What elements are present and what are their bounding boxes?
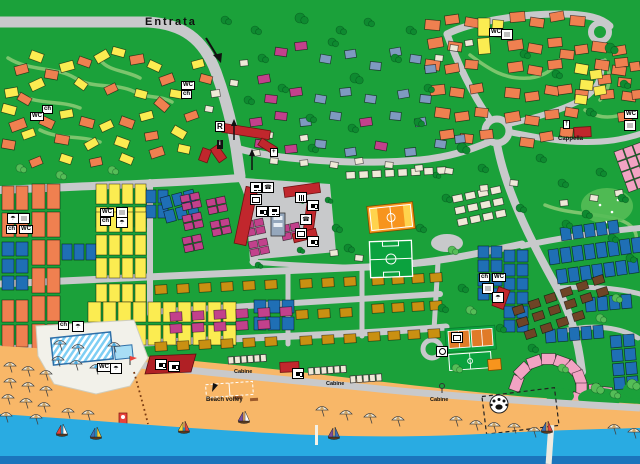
pitch [170, 312, 182, 322]
pitch [221, 282, 233, 292]
pitch [415, 165, 424, 172]
chapel-label: Cappella [558, 136, 583, 142]
pitch [477, 38, 490, 55]
ch-label: ch [181, 90, 192, 99]
pitch [580, 79, 594, 90]
pitch [524, 91, 539, 102]
pitch [439, 129, 454, 140]
pitch [428, 329, 440, 339]
pitch [408, 330, 420, 340]
ch-label: ch [58, 321, 69, 330]
tv-room-icon [295, 228, 307, 239]
bar-icon [155, 359, 167, 370]
pitch [574, 94, 587, 105]
cabins-label: Cabine [430, 397, 448, 403]
wc-label: WC [19, 225, 33, 234]
pitch [430, 273, 442, 283]
groyne [315, 425, 318, 445]
pitch [360, 117, 373, 127]
pitch [240, 60, 249, 67]
pitch [560, 49, 575, 59]
pitch [364, 94, 376, 103]
pitch [250, 117, 263, 127]
pitch [265, 337, 277, 347]
chapel-cross-icon: † [563, 120, 570, 129]
pitch [465, 59, 479, 69]
pitch [199, 283, 211, 293]
phone-icon: ☎ [262, 182, 274, 193]
pitch [236, 321, 248, 331]
umbrella-service-icon: ☂ [110, 363, 122, 374]
restaurant-icon [295, 192, 307, 203]
pitch [340, 87, 352, 96]
pitch [524, 115, 539, 126]
pitch [434, 107, 450, 119]
pitch [258, 308, 270, 318]
pitch [454, 111, 469, 122]
pitch [300, 336, 312, 346]
pitch [300, 279, 312, 289]
shower-icon [18, 213, 30, 224]
pitch [344, 49, 356, 58]
pitch [390, 111, 402, 120]
pitch [314, 94, 326, 104]
pitch [280, 307, 292, 317]
bar-icon [307, 200, 319, 211]
parking-area [431, 234, 463, 252]
bar-icon [307, 236, 319, 247]
pitch [275, 111, 288, 120]
pitch [549, 11, 564, 22]
umbrella-service-icon: ☂ [116, 217, 128, 228]
pitch [480, 185, 489, 192]
pitch [593, 85, 606, 96]
pitch [425, 19, 441, 30]
pitch [574, 44, 588, 55]
shower-icon [624, 120, 636, 131]
pitch-grid [62, 244, 96, 260]
pitch [295, 41, 308, 50]
pitch [427, 37, 444, 49]
pitch [570, 15, 586, 26]
pitch [285, 144, 298, 153]
shop-cart-icon [250, 182, 262, 193]
pitch [412, 302, 424, 312]
pitch [4, 87, 18, 98]
pitch [574, 63, 589, 75]
pitch [450, 44, 459, 51]
pitch [629, 61, 640, 71]
shower-icon [501, 29, 513, 40]
pitch [322, 278, 334, 288]
bar-icon [256, 206, 268, 217]
pitch [344, 334, 356, 344]
pitch [385, 162, 394, 169]
pitch [330, 250, 339, 257]
pitch [340, 308, 352, 318]
pitch [464, 17, 479, 28]
pitch [392, 303, 404, 313]
pitch [409, 54, 421, 63]
pitch [214, 322, 226, 332]
pitch [170, 324, 182, 334]
pitch [300, 160, 309, 167]
pitch [155, 285, 167, 295]
pitch [510, 11, 526, 22]
deep-sea [0, 456, 640, 464]
pitch [177, 284, 189, 294]
pitch [505, 87, 521, 99]
pitch [435, 55, 444, 62]
pitch [177, 341, 189, 351]
wc-label: WC [492, 273, 506, 282]
pitch [480, 129, 494, 139]
pitch [539, 131, 553, 142]
bar-icon [168, 361, 180, 372]
resort-map-graphics [0, 0, 640, 464]
pitch [355, 157, 364, 164]
paw-print-icon [490, 395, 508, 413]
table-tennis-icon [451, 332, 463, 343]
pitch [372, 304, 384, 314]
pitch [230, 79, 239, 86]
pitch [519, 137, 534, 148]
pitch [330, 161, 339, 168]
wc-label: WC [97, 363, 111, 372]
pitch [290, 87, 303, 97]
shop-cart-icon [268, 206, 280, 217]
pitch [469, 83, 483, 94]
pitch [374, 141, 387, 151]
pitch [510, 180, 519, 187]
pitch [270, 158, 279, 165]
umbrella-service-icon: ☂ [72, 321, 84, 332]
pitch [548, 37, 563, 47]
pitch [564, 107, 578, 118]
pitch [557, 84, 572, 95]
pitch [355, 255, 364, 262]
pitch [420, 94, 432, 103]
pitch [548, 59, 563, 69]
pitch [445, 167, 454, 174]
first-aid-icon: + [270, 148, 278, 157]
pitch [296, 310, 308, 320]
pitch [257, 74, 270, 84]
pitch [221, 339, 233, 349]
pitch [412, 274, 424, 284]
pitch [300, 134, 309, 141]
pitch [319, 54, 331, 64]
pitch [594, 59, 609, 71]
phone-icon: ☎ [300, 214, 312, 225]
reception-label: R [215, 121, 225, 132]
pitch [329, 111, 341, 120]
pitch [455, 134, 466, 143]
pitch [449, 87, 464, 98]
umbrella-service-icon: ☂ [492, 292, 504, 303]
cabins-label: Cabine [234, 369, 252, 375]
pitch [211, 89, 221, 97]
wc-label: WC [624, 110, 638, 119]
campground-map: Entrata WC ch ch WC WC ch ch WC ch WC ch… [0, 0, 640, 464]
pitch [425, 64, 437, 73]
pitch [322, 335, 334, 345]
pitch [54, 134, 69, 145]
pitch [444, 63, 459, 74]
pitch [344, 147, 356, 156]
lifeguard-buoy-icon [119, 413, 127, 424]
pitch [504, 111, 521, 123]
wc-label: WC [100, 208, 114, 217]
pitch [192, 311, 204, 321]
pitch [444, 14, 459, 25]
pitch [129, 54, 144, 65]
pitch [44, 69, 58, 80]
pitch [529, 17, 544, 28]
pitch [258, 320, 270, 330]
pitch [243, 338, 255, 348]
pitch [370, 61, 382, 70]
basketball-court [367, 202, 416, 234]
pitch [465, 39, 474, 46]
cabins-label: Cabine [326, 381, 344, 387]
pitch [545, 109, 560, 119]
pitch [507, 61, 523, 73]
beach-volley-label: Beach volley [206, 397, 243, 403]
pitch [192, 323, 204, 333]
pitch [507, 39, 523, 51]
pitch [368, 332, 380, 342]
pitch [344, 277, 356, 287]
pitch [318, 309, 330, 319]
pitch [434, 139, 446, 148]
pitch [243, 281, 255, 291]
pitch [527, 65, 542, 76]
soccer-ball-icon [436, 346, 448, 357]
playground-area [488, 358, 502, 370]
pitch [265, 280, 277, 290]
pitch [275, 47, 288, 57]
ch-label: ch [6, 225, 17, 234]
ch-label: ch [479, 273, 490, 282]
pitch [265, 94, 278, 103]
entrance-label: Entrata [145, 16, 197, 28]
sunbed [250, 398, 258, 402]
pitch [199, 340, 211, 350]
bar-icon [292, 368, 304, 379]
pitch [405, 147, 417, 156]
pitch [214, 310, 226, 320]
wc-label: WC [181, 81, 195, 90]
pitch [397, 89, 409, 99]
pitch [205, 105, 214, 112]
pitch [560, 200, 569, 207]
pitch [1, 139, 15, 150]
pitch [589, 69, 602, 80]
pitch [590, 194, 599, 201]
pitch [155, 342, 167, 352]
ch-label: ch [100, 217, 111, 226]
pitch [527, 43, 542, 54]
pitch [475, 107, 489, 117]
pitch [632, 90, 640, 100]
tv-room-icon [250, 194, 262, 205]
info-point-label: i [217, 140, 223, 149]
pitch [236, 309, 248, 319]
pitch [388, 331, 400, 341]
wc-label: WC [30, 112, 44, 121]
soccer-field [369, 240, 412, 277]
pitch [615, 57, 629, 67]
